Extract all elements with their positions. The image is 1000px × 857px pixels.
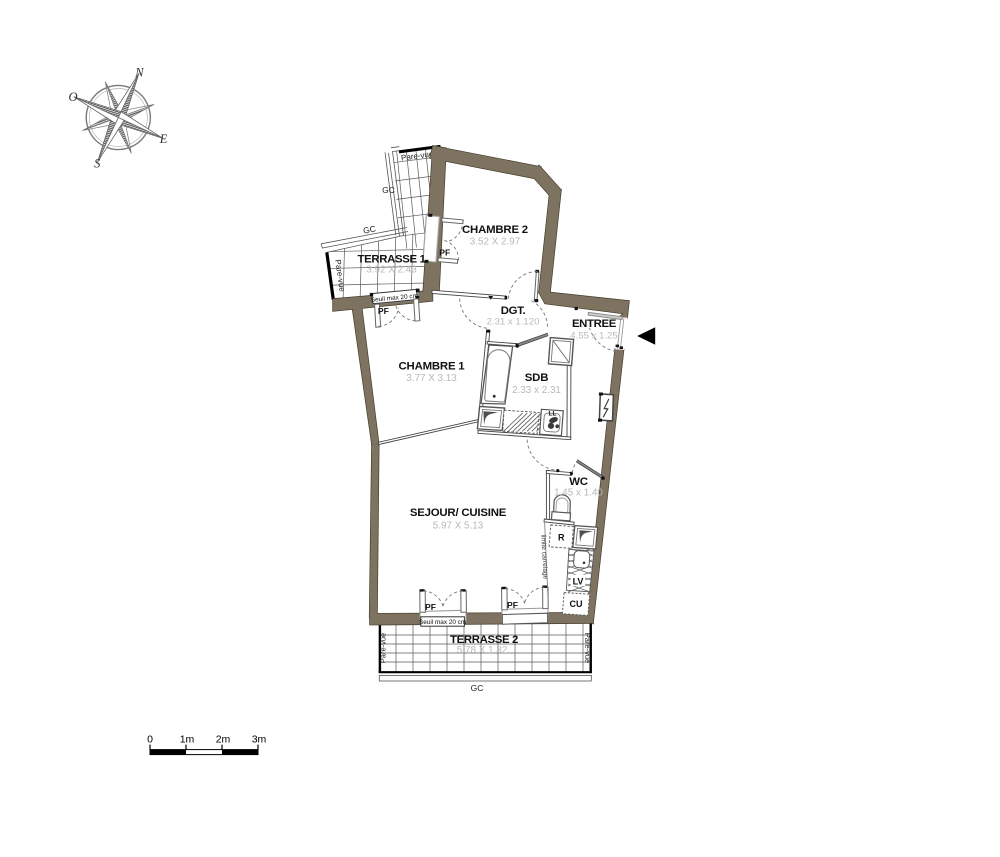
svg-text:PF: PF	[507, 600, 518, 610]
svg-text:2.31 x 1.120: 2.31 x 1.120	[487, 317, 540, 328]
svg-text:1m: 1m	[180, 734, 195, 746]
svg-text:5.78 X 1.32: 5.78 X 1.32	[457, 645, 508, 656]
svg-text:WC: WC	[569, 476, 588, 488]
svg-text:3.92 X 2.43: 3.92 X 2.43	[366, 264, 417, 275]
svg-text:3.77 X 3.13: 3.77 X 3.13	[406, 373, 457, 384]
svg-text:O: O	[68, 90, 77, 104]
svg-text:Pare-vue: Pare-vue	[583, 633, 592, 663]
svg-text:S: S	[94, 156, 101, 170]
svg-text:Seuil max 20 cm: Seuil max 20 cm	[419, 619, 466, 626]
svg-text:R: R	[558, 533, 565, 543]
svg-text:CHAMBRE 2: CHAMBRE 2	[462, 224, 528, 236]
svg-text:3.52 X 2.97: 3.52 X 2.97	[470, 237, 521, 248]
svg-text:2m: 2m	[216, 734, 231, 746]
svg-text:0: 0	[147, 734, 153, 746]
svg-text:1.45 x 1.40: 1.45 x 1.40	[554, 488, 603, 499]
svg-text:CU: CU	[570, 599, 583, 609]
svg-text:PF: PF	[439, 248, 450, 258]
svg-text:3m: 3m	[252, 734, 267, 746]
svg-text:5.97 X 5.13: 5.97 X 5.13	[433, 521, 484, 532]
svg-text:SDB: SDB	[525, 372, 548, 384]
svg-text:E: E	[159, 132, 168, 146]
svg-text:2.33 x 2.31: 2.33 x 2.31	[512, 385, 561, 396]
svg-text:PF: PF	[378, 306, 389, 316]
svg-text:DGT.: DGT.	[501, 305, 526, 317]
svg-text:SEJOUR/ CUISINE: SEJOUR/ CUISINE	[410, 507, 507, 519]
svg-text:N: N	[134, 66, 144, 80]
svg-text:GC: GC	[382, 185, 395, 195]
svg-text:4.55 x 1.25: 4.55 x 1.25	[570, 331, 617, 342]
svg-text:GC: GC	[471, 683, 484, 693]
svg-text:Pare-vue: Pare-vue	[379, 633, 388, 663]
svg-text:LL: LL	[548, 410, 556, 417]
svg-text:PF: PF	[425, 602, 436, 612]
svg-text:CHAMBRE 1: CHAMBRE 1	[399, 361, 466, 373]
svg-text:ENTREE: ENTREE	[572, 318, 617, 330]
svg-text:LV: LV	[573, 577, 584, 587]
